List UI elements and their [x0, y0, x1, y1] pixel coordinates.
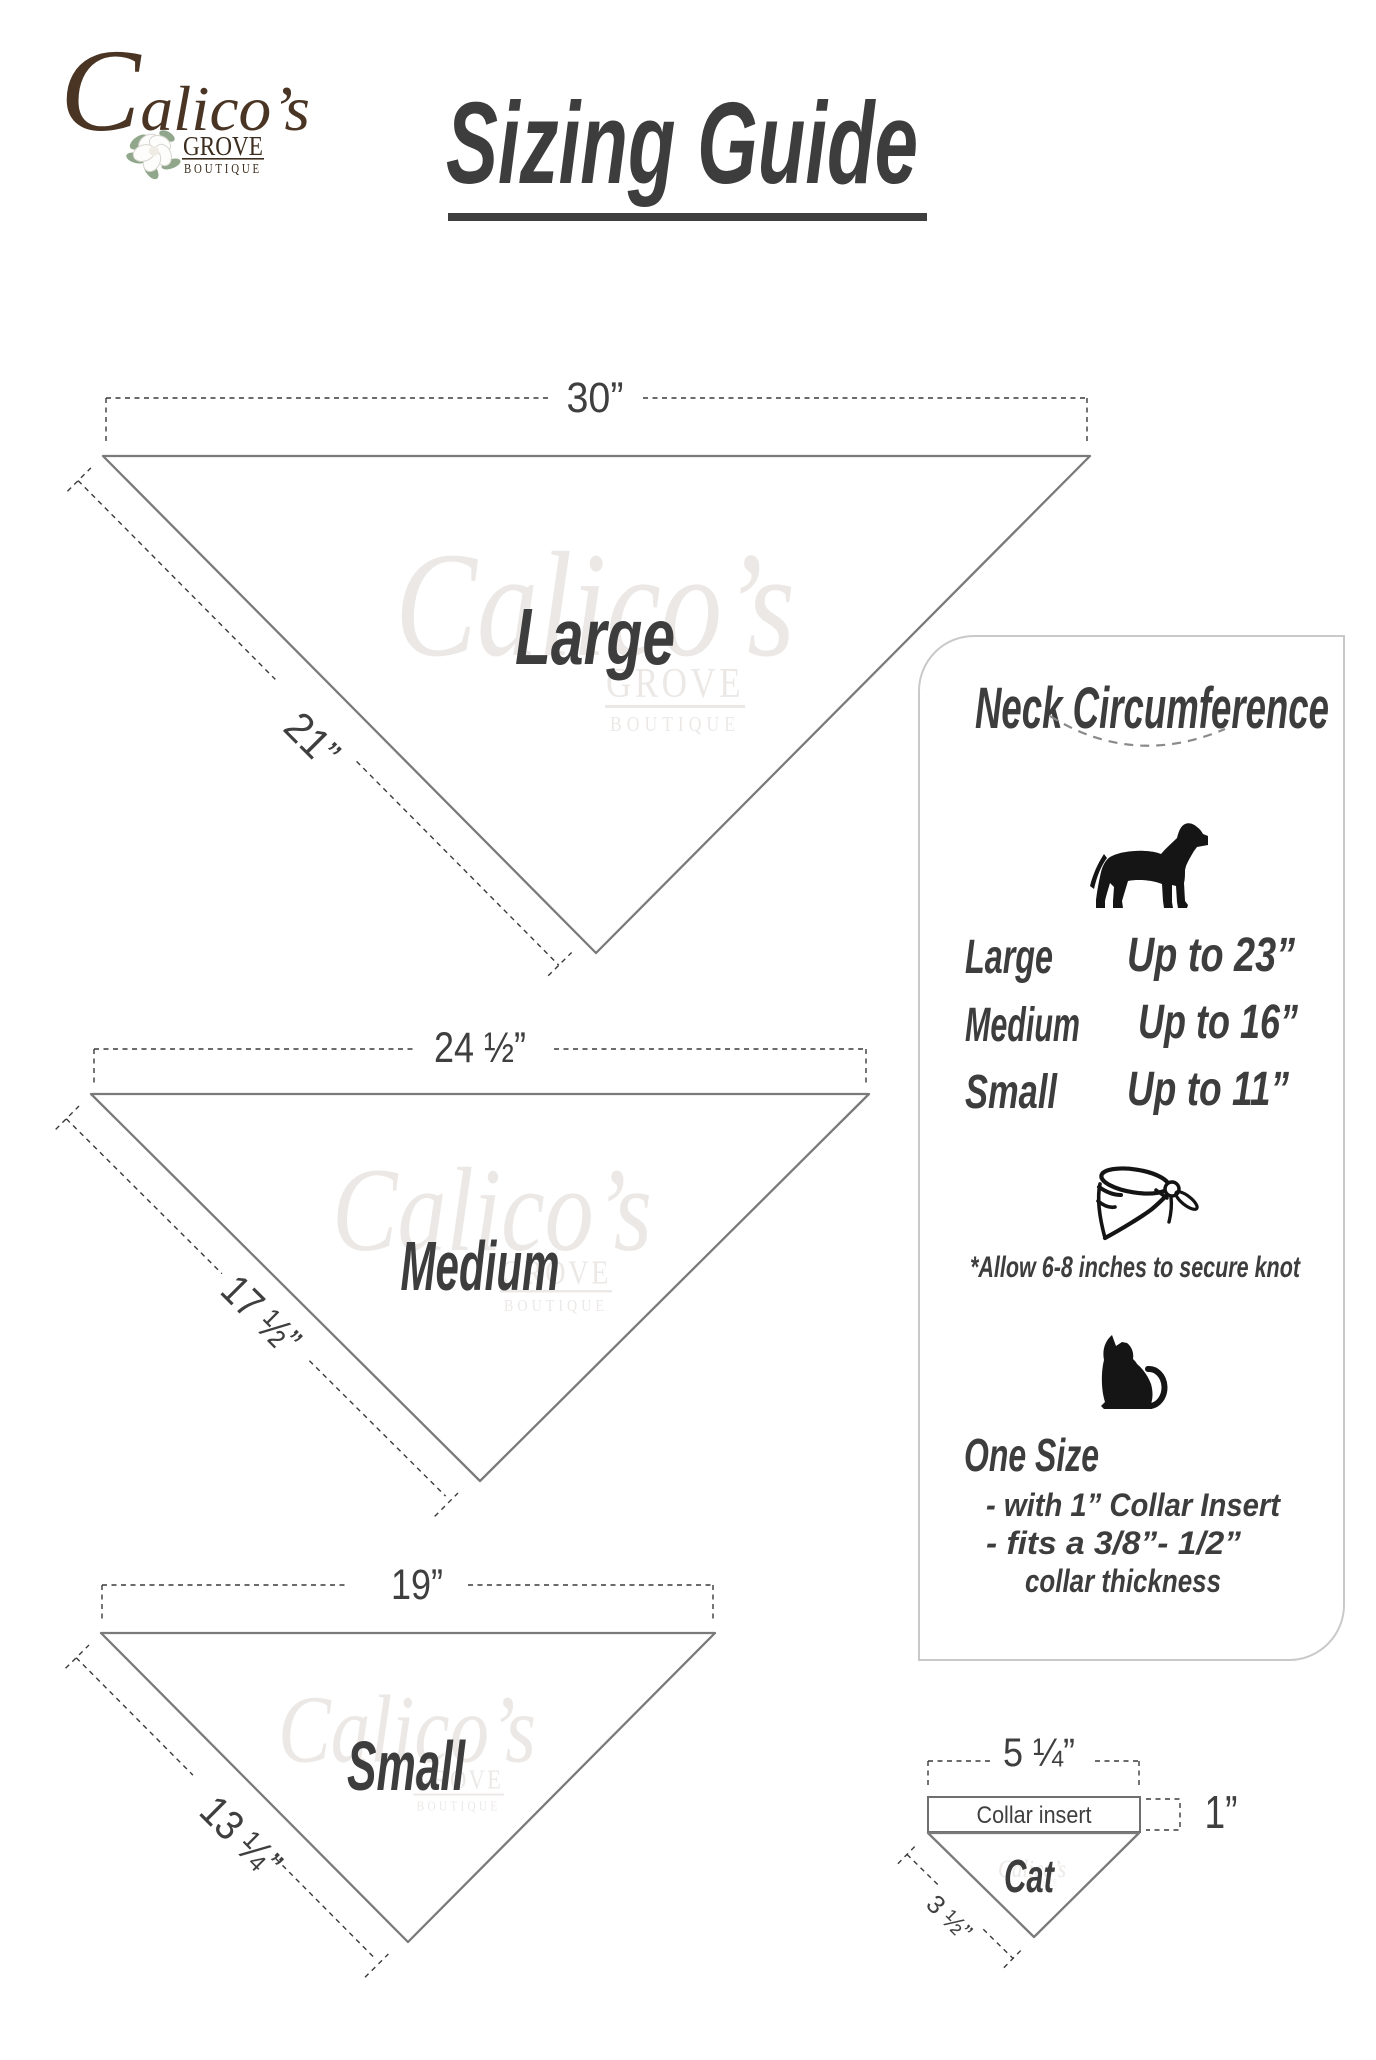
svg-text:Collar insert: Collar insert [977, 1802, 1092, 1829]
svg-text:collar thickness: collar thickness [1025, 1563, 1221, 1599]
svg-text:24 ½”: 24 ½” [434, 1024, 526, 1072]
svg-text:GROVE: GROVE [183, 131, 263, 161]
svg-text:Medium: Medium [965, 999, 1080, 1052]
svg-text:5 ¼”: 5 ¼” [1003, 1731, 1075, 1775]
svg-text:*Allow 6-8 inches to secure kn: *Allow 6-8 inches to secure knot [970, 1251, 1301, 1284]
svg-text:- fits a 3/8”- 1/2”: - fits a 3/8”- 1/2” [986, 1525, 1241, 1561]
svg-text:Up to 16”: Up to 16” [1138, 996, 1298, 1049]
svg-text:Sizing Guide: Sizing Guide [446, 78, 918, 208]
svg-text:30”: 30” [567, 374, 624, 422]
svg-text:Large: Large [965, 931, 1053, 984]
svg-text:Large: Large [515, 592, 675, 681]
svg-text:1”: 1” [1205, 1786, 1238, 1838]
svg-text:Up to 11”: Up to 11” [1127, 1063, 1289, 1116]
svg-text:Cat: Cat [1004, 1850, 1055, 1902]
svg-text:One Size: One Size [964, 1429, 1099, 1481]
svg-text:BOUTIQUE: BOUTIQUE [184, 161, 262, 176]
svg-text:Medium: Medium [401, 1227, 560, 1305]
svg-text:Small: Small [965, 1066, 1058, 1119]
svg-text:- with 1” Collar Insert: - with 1” Collar Insert [986, 1487, 1281, 1523]
svg-text:19”: 19” [391, 1561, 443, 1609]
svg-text:Up to 23”: Up to 23” [1127, 929, 1295, 982]
svg-text:Small: Small [347, 1727, 466, 1805]
svg-text:Neck Circumference: Neck Circumference [975, 676, 1329, 741]
